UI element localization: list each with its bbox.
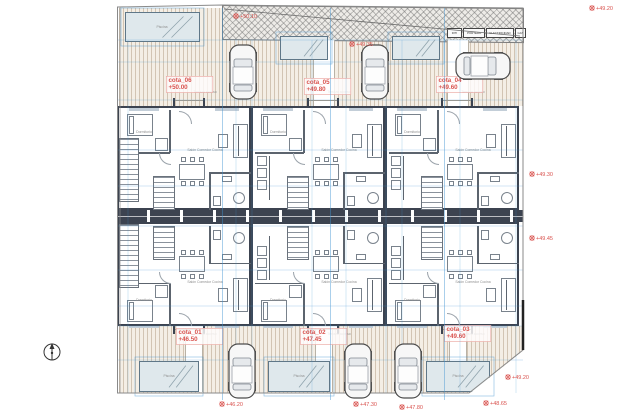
bath-partition [477, 172, 479, 210]
cota-level: +50.00 [168, 84, 210, 91]
bath-partition [477, 263, 519, 265]
shower [367, 192, 379, 204]
chair [315, 181, 320, 186]
kitchen-appliance [391, 258, 401, 268]
chair [458, 274, 463, 279]
bedroom-window [263, 108, 293, 111]
living-window [349, 326, 373, 329]
shower [367, 232, 379, 244]
toilet [481, 196, 489, 206]
bath-sink [490, 176, 500, 182]
bath-sink [222, 176, 232, 182]
party-wall-cavity-line [117, 216, 523, 217]
pool-label: Piscina [156, 25, 167, 29]
bath-sink [356, 254, 366, 260]
shower [233, 232, 245, 244]
chair [324, 250, 329, 255]
meter-box-label: GAS [517, 31, 523, 34]
bedroom-window [397, 326, 427, 329]
shower [501, 232, 513, 244]
living-label: Salón Comedor Cocina [455, 148, 490, 152]
sofa-cushion-line [238, 280, 239, 310]
sofa [501, 124, 516, 158]
cota-level: +47.45 [302, 336, 344, 343]
bedroom-label: Dormitorio [136, 130, 152, 134]
living-label: Salón Comedor Cocina [187, 280, 222, 284]
chair [199, 274, 204, 279]
porch-wall [173, 326, 175, 334]
kitchen-appliance [391, 246, 401, 256]
sofa [367, 278, 382, 312]
shower [501, 192, 513, 204]
living-label: Salón Comedor Cocina [187, 148, 222, 152]
door-swing-arc [313, 313, 326, 326]
dining-table [313, 164, 339, 180]
coffee-table [352, 134, 362, 148]
chair [333, 157, 338, 162]
living-label: Salón Comedor Cocina [321, 148, 356, 152]
porch-wall [441, 326, 443, 334]
bedroom-partition [169, 283, 171, 326]
entry-door-gap [445, 108, 471, 111]
chair [199, 181, 204, 186]
exterior-stairs [119, 138, 139, 202]
door-swing-arc [179, 111, 192, 124]
wardrobe [289, 285, 302, 298]
chair [181, 181, 186, 186]
sofa-cushion-line [506, 126, 507, 156]
bedroom-partition [303, 283, 305, 326]
meter-box-label: ELECTRICIDAD [489, 31, 510, 34]
door-swing-arc [427, 153, 439, 165]
chair [333, 274, 338, 279]
bath-partition [477, 172, 519, 174]
toilet [213, 196, 221, 206]
bath-partition [477, 226, 479, 264]
kitchen-appliance [257, 168, 267, 178]
dining-table [179, 256, 205, 272]
bedroom-label: Dormitorio [404, 130, 420, 134]
cota-label-cota_05: cota_05+49.80 [304, 78, 351, 95]
interior-stairs [287, 226, 309, 260]
coffee-table [218, 288, 228, 302]
interior-stairs [153, 226, 175, 260]
bed-pillow [397, 116, 402, 134]
bath-partition [343, 172, 345, 210]
bedroom-window [129, 326, 159, 329]
bath-partition [343, 226, 345, 264]
chair [315, 274, 320, 279]
bath-partition [209, 172, 251, 174]
kitchen-counter-edge [403, 156, 404, 200]
wardrobe [423, 285, 436, 298]
living-window [215, 108, 239, 111]
exterior-stairs [119, 224, 139, 288]
cota-label-cota_04: cota_04+49.60 [436, 76, 483, 93]
kitchen-counter-edge [269, 236, 270, 280]
bedroom-window [263, 326, 293, 329]
cota-level: +49.80 [306, 86, 348, 93]
kitchen-counter-edge [403, 236, 404, 280]
cota-level: +49.60 [446, 333, 488, 340]
floorplan-canvas: PiscinaPiscinaPiscinaPiscinaDormitorioSa… [0, 0, 620, 415]
porch-step [309, 100, 337, 101]
bedroom-partition [389, 283, 438, 285]
chair [449, 250, 454, 255]
bath-sink [222, 254, 232, 260]
door-swing-arc [179, 313, 192, 326]
chair [199, 157, 204, 162]
interior-stairs [421, 226, 443, 260]
bed-pillow [397, 302, 402, 320]
toilet [481, 230, 489, 240]
chair [333, 250, 338, 255]
coffee-table [218, 134, 228, 148]
unit-cota_04 [385, 106, 519, 210]
chair [449, 181, 454, 186]
chair [190, 250, 195, 255]
interior-stairs [287, 176, 309, 210]
porch-wall [203, 98, 205, 106]
bedroom-window [397, 108, 427, 111]
chair [449, 274, 454, 279]
wardrobe [155, 138, 168, 151]
chair [467, 250, 472, 255]
bedroom-window [129, 108, 159, 111]
bedroom-partition [437, 110, 439, 153]
meter-box: PORTERO [463, 28, 485, 38]
porch-wall [337, 98, 339, 106]
chair [449, 157, 454, 162]
chair [467, 157, 472, 162]
cota-label-cota_01: cota_01+46.50 [176, 328, 223, 345]
bed-pillow [263, 116, 268, 134]
bed-pillow [263, 302, 268, 320]
sofa [501, 278, 516, 312]
kitchen-appliance [391, 270, 401, 280]
entry-door-gap [311, 108, 337, 111]
bath-sink [356, 176, 366, 182]
chair [315, 157, 320, 162]
sofa [367, 124, 382, 158]
living-window [483, 108, 507, 111]
site-plan: PiscinaPiscinaPiscinaPiscinaDormitorioSa… [0, 0, 620, 415]
bedroom-label: Dormitorio [270, 298, 286, 302]
shower [233, 192, 245, 204]
cota-level: +49.60 [438, 84, 480, 91]
chair [458, 157, 463, 162]
bedroom-partition [437, 283, 439, 326]
bedroom-partition [303, 110, 305, 153]
bath-partition [209, 263, 251, 265]
chair [458, 181, 463, 186]
kitchen-counter-edge [269, 156, 270, 200]
sofa [233, 278, 248, 312]
living-label: Salón Comedor Cocina [321, 280, 356, 284]
wardrobe [423, 138, 436, 151]
porch-wall [471, 98, 473, 106]
toilet [213, 230, 221, 240]
pool-label: Piscina [452, 374, 463, 378]
bedroom-label: Dormitorio [136, 298, 152, 302]
sofa-cushion-line [238, 126, 239, 156]
kitchen-appliance [391, 180, 401, 190]
wardrobe [155, 285, 168, 298]
door-swing-arc [293, 153, 305, 165]
kitchen-appliance [257, 258, 267, 268]
chair [181, 274, 186, 279]
living-label: Salón Comedor Cocina [455, 280, 490, 284]
entry-walkway [447, 40, 469, 106]
coffee-table [486, 134, 496, 148]
door-swing-arc [159, 153, 171, 165]
bed-pillow [129, 116, 134, 134]
cota-level: +46.50 [178, 336, 220, 343]
dining-table [447, 256, 473, 272]
chair [315, 250, 320, 255]
kitchen-appliance [257, 270, 267, 280]
dining-table [179, 164, 205, 180]
bath-partition [209, 172, 211, 210]
meter-box-label: PORTERO [467, 31, 481, 34]
porch-step [443, 100, 471, 101]
unit-cota_05 [251, 106, 385, 210]
chair [181, 250, 186, 255]
porch-step [175, 100, 203, 101]
chair [190, 181, 195, 186]
meter-box: ELECTRICIDAD [486, 28, 514, 38]
chair [324, 157, 329, 162]
chair [190, 274, 195, 279]
pool [392, 36, 440, 60]
sofa-cushion-line [506, 280, 507, 310]
bed-pillow [129, 302, 134, 320]
bath-partition [209, 226, 211, 264]
kitchen-appliance [257, 180, 267, 190]
chair [467, 181, 472, 186]
bedroom-partition [169, 110, 171, 153]
kitchen-appliance [257, 156, 267, 166]
unit-cota_02 [251, 222, 385, 326]
chair [324, 274, 329, 279]
kitchen-appliance [391, 156, 401, 166]
wardrobe [289, 138, 302, 151]
cota-label-cota_02: cota_02+47.45 [300, 328, 347, 345]
kitchen-appliance [391, 168, 401, 178]
coffee-table [486, 288, 496, 302]
cota-label-cota_03: cota_03+49.60 [444, 325, 491, 342]
cota-label-cota_06: cota_06+50.00 [166, 76, 213, 93]
interior-stairs [153, 176, 175, 210]
bedroom-label: Dormitorio [270, 130, 286, 134]
dining-table [447, 164, 473, 180]
bath-partition [343, 263, 385, 265]
chair [181, 157, 186, 162]
pool-label: Piscina [163, 374, 174, 378]
deck-top-yard [222, 40, 523, 106]
meter-box: RITI [447, 28, 462, 38]
chair [324, 181, 329, 186]
interior-stairs [421, 176, 443, 210]
entry-door-gap [177, 108, 203, 111]
living-window [349, 108, 373, 111]
sofa [233, 124, 248, 158]
kitchen-appliance [257, 246, 267, 256]
sofa-cushion-line [372, 280, 373, 310]
dining-table [313, 256, 339, 272]
sofa-cushion-line [372, 126, 373, 156]
toilet [347, 230, 355, 240]
pool-label: Piscina [293, 374, 304, 378]
chair [190, 157, 195, 162]
chair [333, 181, 338, 186]
door-swing-arc [313, 111, 326, 124]
meter-box-label: RITI [452, 31, 457, 34]
coffee-table [352, 288, 362, 302]
bath-partition [343, 172, 385, 174]
bedroom-partition [255, 283, 304, 285]
chair [458, 250, 463, 255]
meter-box: GAS [515, 28, 526, 38]
bath-sink [490, 254, 500, 260]
pool [280, 36, 328, 60]
unit-cota_03 [385, 222, 519, 326]
chair [199, 250, 204, 255]
bedroom-label: Dormitorio [404, 298, 420, 302]
chair [467, 274, 472, 279]
door-swing-arc [447, 111, 460, 124]
toilet [347, 196, 355, 206]
